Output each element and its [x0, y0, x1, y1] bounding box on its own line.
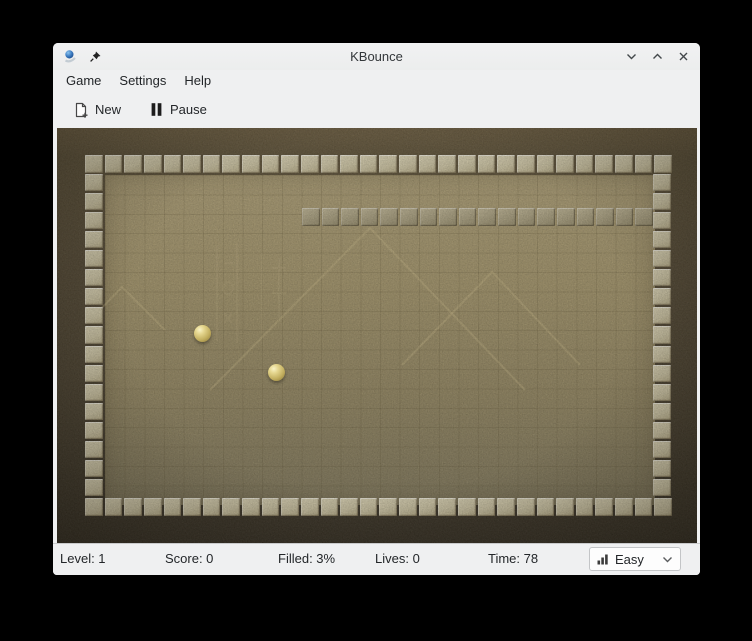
border-tile: [183, 498, 201, 516]
close-button[interactable]: [674, 48, 692, 66]
border-tile: [653, 441, 671, 458]
border-tile: [537, 498, 555, 516]
chevron-down-icon: [662, 556, 673, 563]
ball-1: [194, 325, 211, 342]
border-tile: [497, 498, 515, 516]
wall-tile: [478, 208, 496, 226]
border-tile: [281, 498, 299, 516]
border-tile: [105, 498, 123, 516]
menu-game[interactable]: Game: [57, 71, 110, 90]
window-controls: [622, 48, 692, 66]
border-tile: [458, 155, 476, 173]
border-tile: [595, 155, 613, 173]
wall-tile: [596, 208, 614, 226]
border-wall-left: [85, 174, 103, 496]
border-tile: [105, 155, 123, 173]
border-tile: [124, 498, 142, 516]
pause-button-label: Pause: [170, 102, 207, 117]
border-tile: [340, 498, 358, 516]
border-wall-top: [85, 155, 672, 173]
difficulty-bars-icon: [597, 553, 609, 565]
border-tile: [653, 422, 671, 439]
border-tile: [85, 307, 103, 324]
border-tile: [321, 498, 339, 516]
wall-tile: [400, 208, 418, 226]
border-tile: [419, 155, 437, 173]
border-tile: [85, 441, 103, 458]
titlebar[interactable]: KBounce: [53, 43, 700, 70]
border-tile: [301, 498, 319, 516]
border-tile: [399, 498, 417, 516]
border-tile: [85, 288, 103, 305]
ball-2: [268, 364, 285, 381]
time-status: Time: 78: [488, 544, 538, 574]
toolbar: New Pause: [53, 91, 700, 128]
border-tile: [653, 174, 671, 191]
border-tile: [653, 346, 671, 363]
border-tile: [144, 155, 162, 173]
border-tile: [615, 155, 633, 173]
border-tile: [654, 155, 672, 173]
menu-help[interactable]: Help: [175, 71, 220, 90]
border-wall-bottom: [85, 498, 672, 516]
border-tile: [556, 498, 574, 516]
border-tile: [379, 155, 397, 173]
border-tile: [517, 498, 535, 516]
border-tile: [85, 365, 103, 382]
desktop-background: { "window": { "title": "KBounce" }, "men…: [0, 0, 752, 641]
border-tile: [124, 155, 142, 173]
border-tile: [537, 155, 555, 173]
border-tile: [164, 498, 182, 516]
border-tile: [85, 269, 103, 286]
border-tile: [517, 155, 535, 173]
difficulty-value: Easy: [615, 552, 644, 567]
border-tile: [635, 155, 653, 173]
wall-tile: [518, 208, 536, 226]
border-tile: [419, 498, 437, 516]
border-tile: [478, 498, 496, 516]
filled-status: Filled: 3%: [278, 544, 335, 574]
border-tile: [262, 155, 280, 173]
border-tile: [85, 250, 103, 267]
border-tile: [85, 193, 103, 210]
wall-tile: [341, 208, 359, 226]
border-tile: [85, 346, 103, 363]
border-tile: [85, 479, 103, 496]
border-tile: [653, 250, 671, 267]
new-document-icon: [73, 102, 89, 118]
border-tile: [653, 212, 671, 229]
border-tile: [321, 155, 339, 173]
wall-tile: [537, 208, 555, 226]
border-tile: [85, 155, 103, 173]
built-wall-row: [302, 208, 653, 226]
border-tile: [556, 155, 574, 173]
border-tile: [653, 365, 671, 382]
pause-icon: [149, 102, 164, 117]
border-tile: [595, 498, 613, 516]
border-tile: [653, 460, 671, 477]
border-tile: [340, 155, 358, 173]
border-tile: [399, 155, 417, 173]
wall-tile: [616, 208, 634, 226]
border-tile: [144, 498, 162, 516]
wall-tile: [439, 208, 457, 226]
border-tile: [576, 155, 594, 173]
border-tile: [438, 155, 456, 173]
border-wall-right: [653, 174, 671, 496]
border-tile: [438, 498, 456, 516]
border-tile: [635, 498, 653, 516]
border-tile: [653, 193, 671, 210]
wall-tile: [498, 208, 516, 226]
menu-settings[interactable]: Settings: [110, 71, 175, 90]
border-tile: [85, 212, 103, 229]
wall-tile: [361, 208, 379, 226]
wall-tile: [635, 208, 653, 226]
border-tile: [183, 155, 201, 173]
border-tile: [203, 155, 221, 173]
kbounce-app-icon[interactable]: [63, 49, 78, 64]
pause-button[interactable]: Pause: [144, 98, 212, 121]
border-tile: [653, 326, 671, 343]
border-tile: [222, 498, 240, 516]
border-tile: [281, 155, 299, 173]
wall-tile: [459, 208, 477, 226]
wall-tile: [577, 208, 595, 226]
border-tile: [85, 174, 103, 191]
border-tile: [379, 498, 397, 516]
wall-tile: [420, 208, 438, 226]
statusbar: Level: 1 Score: 0 Filled: 3% Lives: 0 Ti…: [53, 543, 700, 575]
window-title: KBounce: [53, 49, 700, 64]
border-tile: [360, 498, 378, 516]
border-tile: [458, 498, 476, 516]
border-tile: [360, 155, 378, 173]
border-tile: [653, 479, 671, 496]
pin-icon[interactable]: [89, 50, 102, 63]
new-button-label: New: [95, 102, 121, 117]
difficulty-dropdown[interactable]: Easy: [589, 547, 681, 571]
border-tile: [653, 269, 671, 286]
wall-tile: [322, 208, 340, 226]
border-tile: [653, 288, 671, 305]
border-tile: [85, 326, 103, 343]
border-tile: [164, 155, 182, 173]
border-tile: [478, 155, 496, 173]
border-tile: [85, 231, 103, 248]
border-tile: [222, 155, 240, 173]
wall-tile: [380, 208, 398, 226]
border-tile: [576, 498, 594, 516]
border-tile: [242, 498, 260, 516]
border-tile: [85, 403, 103, 420]
border-tile: [654, 498, 672, 516]
maximize-button[interactable]: [648, 48, 666, 66]
border-tile: [85, 460, 103, 477]
border-tile: [653, 231, 671, 248]
border-tile: [85, 422, 103, 439]
score-status: Score: 0: [165, 544, 213, 574]
game-canvas[interactable]: [57, 128, 697, 543]
border-tile: [242, 155, 260, 173]
chevron-up-icon: [652, 51, 663, 62]
border-tile: [203, 498, 221, 516]
border-tile: [262, 498, 280, 516]
menubar: Game Settings Help: [53, 70, 700, 91]
level-status: Level: 1: [60, 544, 106, 574]
border-tile: [653, 384, 671, 401]
border-tile: [497, 155, 515, 173]
close-icon: [678, 51, 689, 62]
kbounce-window: KBounce Game Settings Help New: [53, 43, 700, 575]
border-tile: [653, 403, 671, 420]
new-game-button[interactable]: New: [68, 98, 126, 122]
minimize-button[interactable]: [622, 48, 640, 66]
border-tile: [301, 155, 319, 173]
border-tile: [85, 498, 103, 516]
wall-tile: [557, 208, 575, 226]
border-tile: [653, 307, 671, 324]
border-tile: [615, 498, 633, 516]
wall-tile: [302, 208, 320, 226]
border-tile: [85, 384, 103, 401]
lives-status: Lives: 0: [375, 544, 420, 574]
chevron-down-icon: [626, 51, 637, 62]
